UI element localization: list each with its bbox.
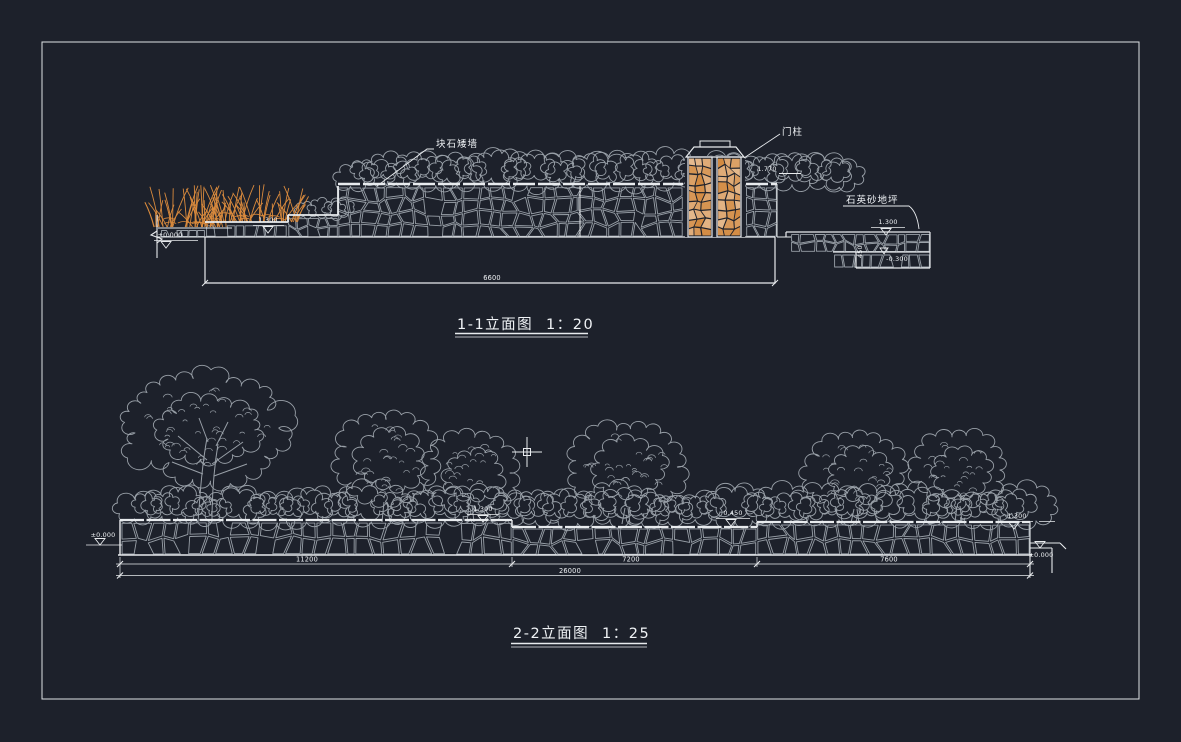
svg-text:±0.000: ±0.000 [1029, 551, 1054, 559]
dimension-overall-1: 6600 [483, 274, 501, 282]
dimension-seg1: 11200 [296, 556, 318, 564]
step-height-dimension: 450 [856, 245, 864, 258]
drawing1-title: 1-1立面图 [457, 316, 533, 333]
title-elevation-2-2: 2-2立面图 1：25 [511, 625, 650, 647]
dimension-seg3: 7600 [880, 556, 898, 564]
label-gate-post: 门柱 [782, 126, 803, 138]
svg-text:1.300: 1.300 [258, 216, 277, 224]
dimension-seg2: 7200 [622, 556, 640, 564]
elevation-marker-post-top: 1.770 [757, 165, 776, 173]
svg-text:±0.000: ±0.000 [91, 531, 116, 539]
drawing1-scale: 1：20 [546, 317, 594, 333]
label-stone-wall: 块石矮墙 [436, 138, 478, 150]
svg-text:1.300: 1.300 [473, 505, 492, 513]
cad-model-space[interactable]: 块石矮墙 门柱 石英砂地坪 1.300 ±0.000 1.770 1.300 -… [0, 0, 1181, 742]
drawing2-scale: 1：25 [602, 626, 650, 642]
drawing2-title: 2-2立面图 [513, 625, 589, 642]
title-elevation-1-1: 1-1立面图 1：20 [455, 316, 594, 337]
svg-text:±0.000: ±0.000 [158, 231, 183, 239]
svg-text:1.300: 1.300 [878, 218, 897, 226]
label-quartz-sand-paving: 石英砂地坪 [846, 194, 899, 206]
cad-canvas[interactable]: 块石矮墙 门柱 石英砂地坪 1.300 ±0.000 1.770 1.300 -… [0, 0, 1181, 742]
svg-text:0.450: 0.450 [723, 509, 742, 517]
dimension-overall-2: 26000 [559, 567, 581, 575]
svg-text:-0.300: -0.300 [886, 255, 908, 263]
canvas-background [0, 0, 1181, 742]
svg-text:1.300: 1.300 [1007, 512, 1026, 520]
svg-text:1.770: 1.770 [757, 165, 776, 173]
